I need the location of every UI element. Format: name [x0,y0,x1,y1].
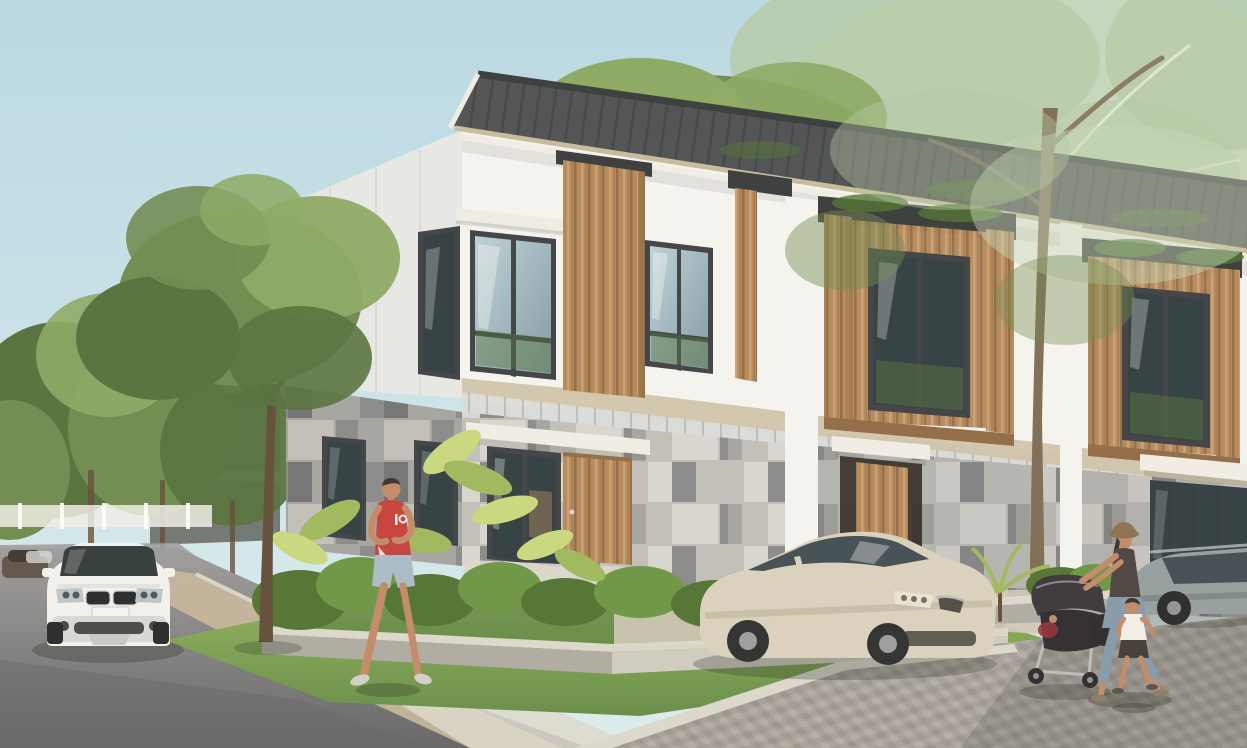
sunlight-wash [0,0,1247,748]
architectural-rendering [0,0,1247,748]
rendering-canvas [0,0,1247,748]
